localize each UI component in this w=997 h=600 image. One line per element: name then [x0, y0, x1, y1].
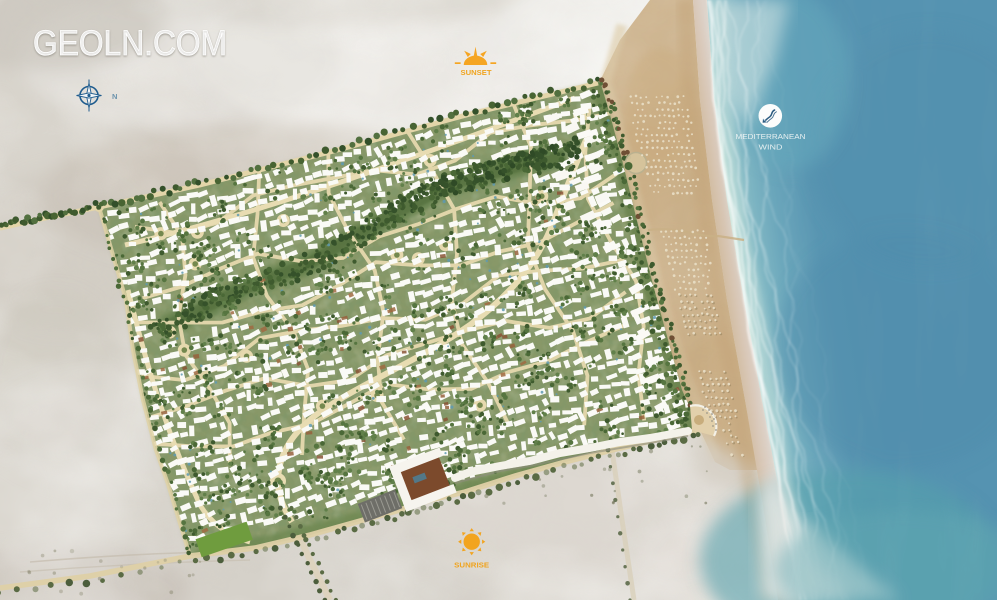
svg-text:N: N: [112, 92, 117, 101]
svg-text:GEOLN.COM: GEOLN.COM: [33, 24, 227, 63]
svg-text:WIND: WIND: [759, 142, 784, 151]
svg-text:SUNRISE: SUNRISE: [454, 561, 489, 570]
svg-text:MEDITERRANEAN: MEDITERRANEAN: [736, 132, 806, 141]
svg-text:SUNSET: SUNSET: [461, 68, 492, 77]
